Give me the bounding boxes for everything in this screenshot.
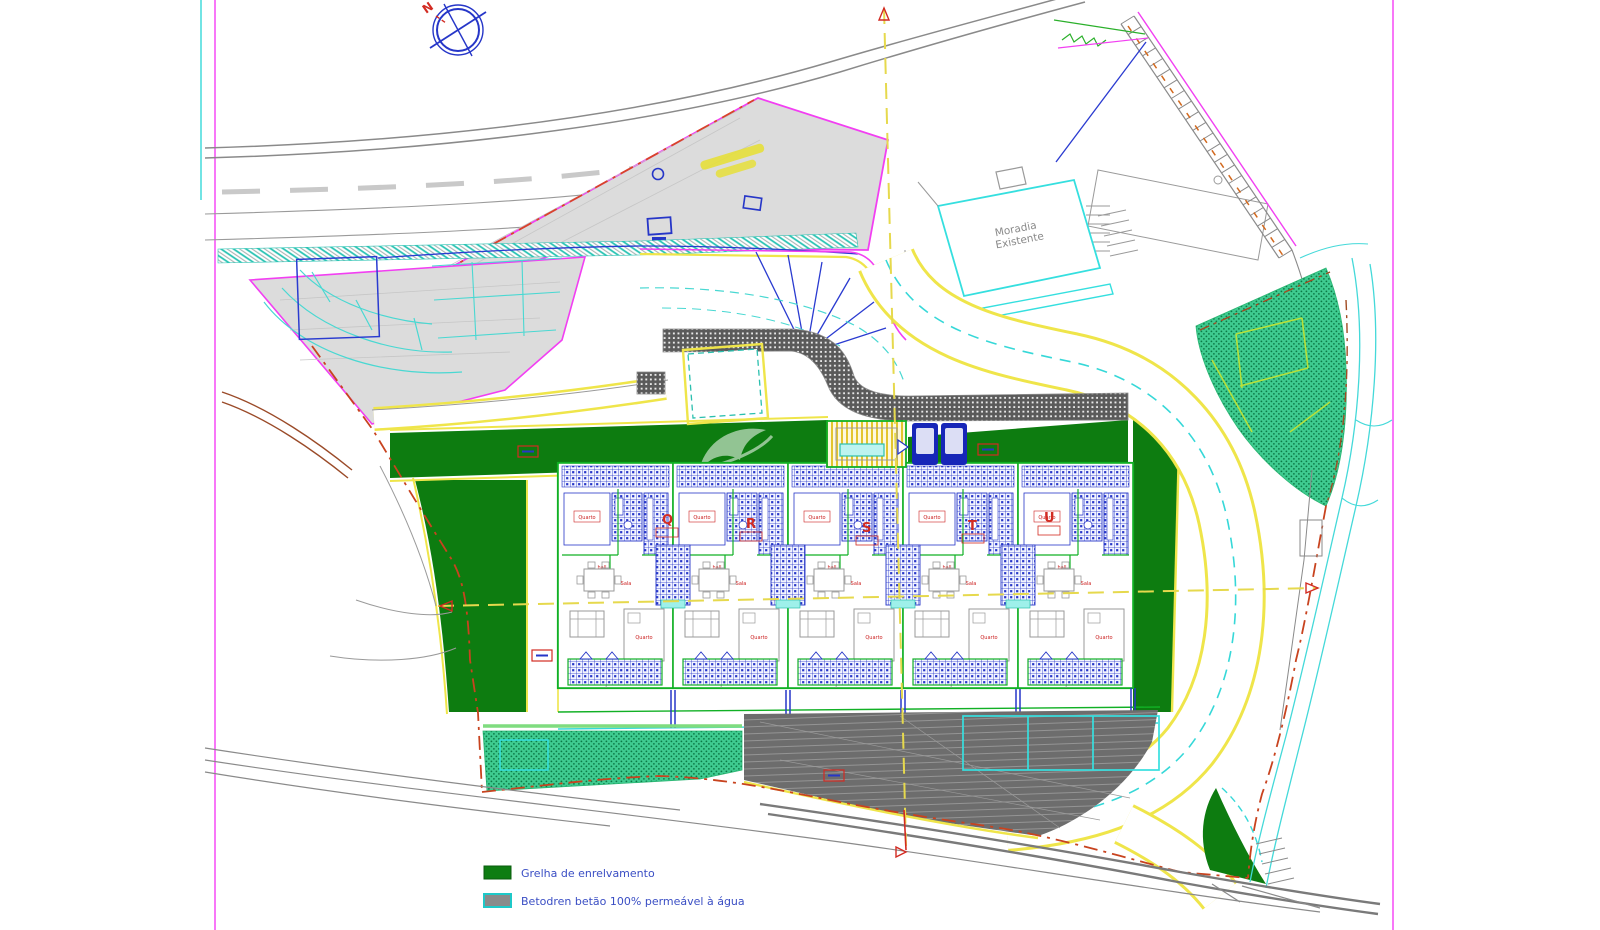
- units-layer: Quarto hall Sala Quarto Quarto: [558, 463, 1133, 688]
- elevation-marker: [532, 650, 552, 661]
- balcony-tiles: [1028, 659, 1122, 685]
- axis-arrow-bottom: [896, 847, 906, 857]
- svg-text:Quarto: Quarto: [750, 635, 767, 641]
- legend-swatch-gray: [484, 894, 511, 907]
- dining-table: [929, 569, 959, 591]
- room-label-bedroom: Quarto: [578, 515, 595, 521]
- north-label: N: [420, 0, 436, 16]
- unit-letter: R: [746, 517, 756, 532]
- legend-swatch-green: [484, 866, 511, 879]
- balcony-tiles: [568, 659, 662, 685]
- plaza-square: [688, 349, 762, 418]
- north-compass: N: [420, 0, 486, 56]
- grass-grid-south: [483, 726, 742, 791]
- site-plan-sheet: Quarto hall Sala Quarto: [0, 0, 1600, 930]
- vegetation-symbol: [1062, 34, 1106, 46]
- terrace-tiles: [1022, 466, 1129, 487]
- terrace-tiles: [562, 466, 669, 487]
- svg-text:Quarto: Quarto: [865, 635, 882, 641]
- terrace-tiles: [792, 466, 899, 487]
- room-label-bedroom: Quarto: [923, 515, 940, 521]
- apartment-building: Quarto hall Sala Quarto Quarto: [558, 463, 1133, 688]
- legend-item-grass-grid: Grelha de enrelvamento: [484, 866, 655, 880]
- legend-label: Betodren betão 100% permeável à água: [521, 895, 745, 908]
- dining-table: [1044, 569, 1074, 591]
- legend: Grelha de enrelvamento Betodren betão 10…: [484, 866, 745, 908]
- unit-letter: S: [862, 521, 871, 536]
- room-label-living: Sala: [621, 581, 632, 587]
- room-label-living: Sala: [851, 581, 862, 587]
- terrace-tiles: [677, 466, 784, 487]
- lawn-southeast-triangle: [1203, 788, 1266, 884]
- svg-text:Quarto: Quarto: [635, 635, 652, 641]
- unit-letter: U: [1044, 511, 1055, 526]
- svg-text:Quarto: Quarto: [1095, 635, 1112, 641]
- legend-label: Grelha de enrelvamento: [521, 867, 655, 880]
- balcony-tiles: [913, 659, 1007, 685]
- dining-table: [814, 569, 844, 591]
- room-label-living: Sala: [1081, 581, 1092, 587]
- room-label-bedroom: Quarto: [693, 515, 710, 521]
- boundary-along-wall: [1128, 26, 1286, 260]
- room-label-living: Sala: [736, 581, 747, 587]
- room-label-living: Sala: [966, 581, 977, 587]
- unit-letter: T: [968, 519, 977, 534]
- site-plan-drawing: Quarto hall Sala Quarto: [0, 0, 1600, 930]
- dining-table: [584, 569, 614, 591]
- stair-core: [827, 421, 967, 467]
- terrace-tiles: [907, 466, 1014, 487]
- lawn-west-column: [415, 480, 527, 712]
- dining-table: [699, 569, 729, 591]
- balcony-tiles: [798, 659, 892, 685]
- balcony-tiles: [683, 659, 777, 685]
- legend-item-betodren: Betodren betão 100% permeável à água: [484, 894, 745, 908]
- svg-text:Quarto: Quarto: [980, 635, 997, 641]
- room-label-bedroom: Quarto: [808, 515, 825, 521]
- unit-letter: Q: [662, 513, 673, 528]
- dirt-path: [222, 392, 352, 478]
